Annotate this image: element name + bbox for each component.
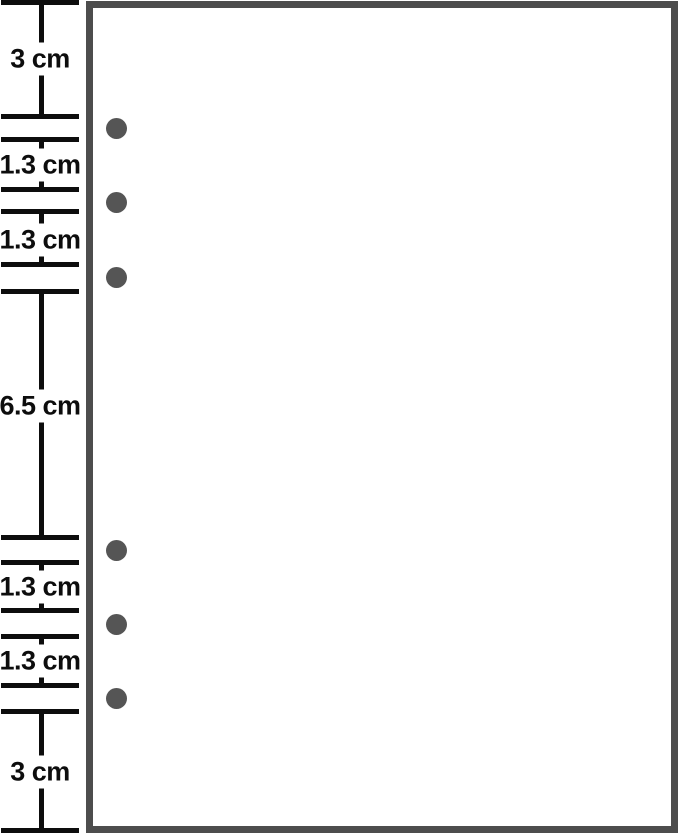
punch-hole [106,688,127,709]
punch-hole [106,118,127,139]
punch-hole [106,614,127,635]
dimension-label: 3 cm [8,756,72,789]
dimension-label: 1.3 cm [0,571,83,604]
paper-page [86,1,678,833]
dimension-label: 1.3 cm [0,224,83,257]
dimension-label: 6.5 cm [0,390,83,423]
hole-spacing-diagram: 3 cm1.3 cm1.3 cm6.5 cm1.3 cm1.3 cm3 cm [0,0,679,835]
punch-hole [106,267,127,288]
punch-hole [106,540,127,561]
punch-hole [106,192,127,213]
dimension-label: 1.3 cm [0,645,83,678]
dimension-label: 1.3 cm [0,149,83,182]
dimension-label: 3 cm [8,43,72,76]
